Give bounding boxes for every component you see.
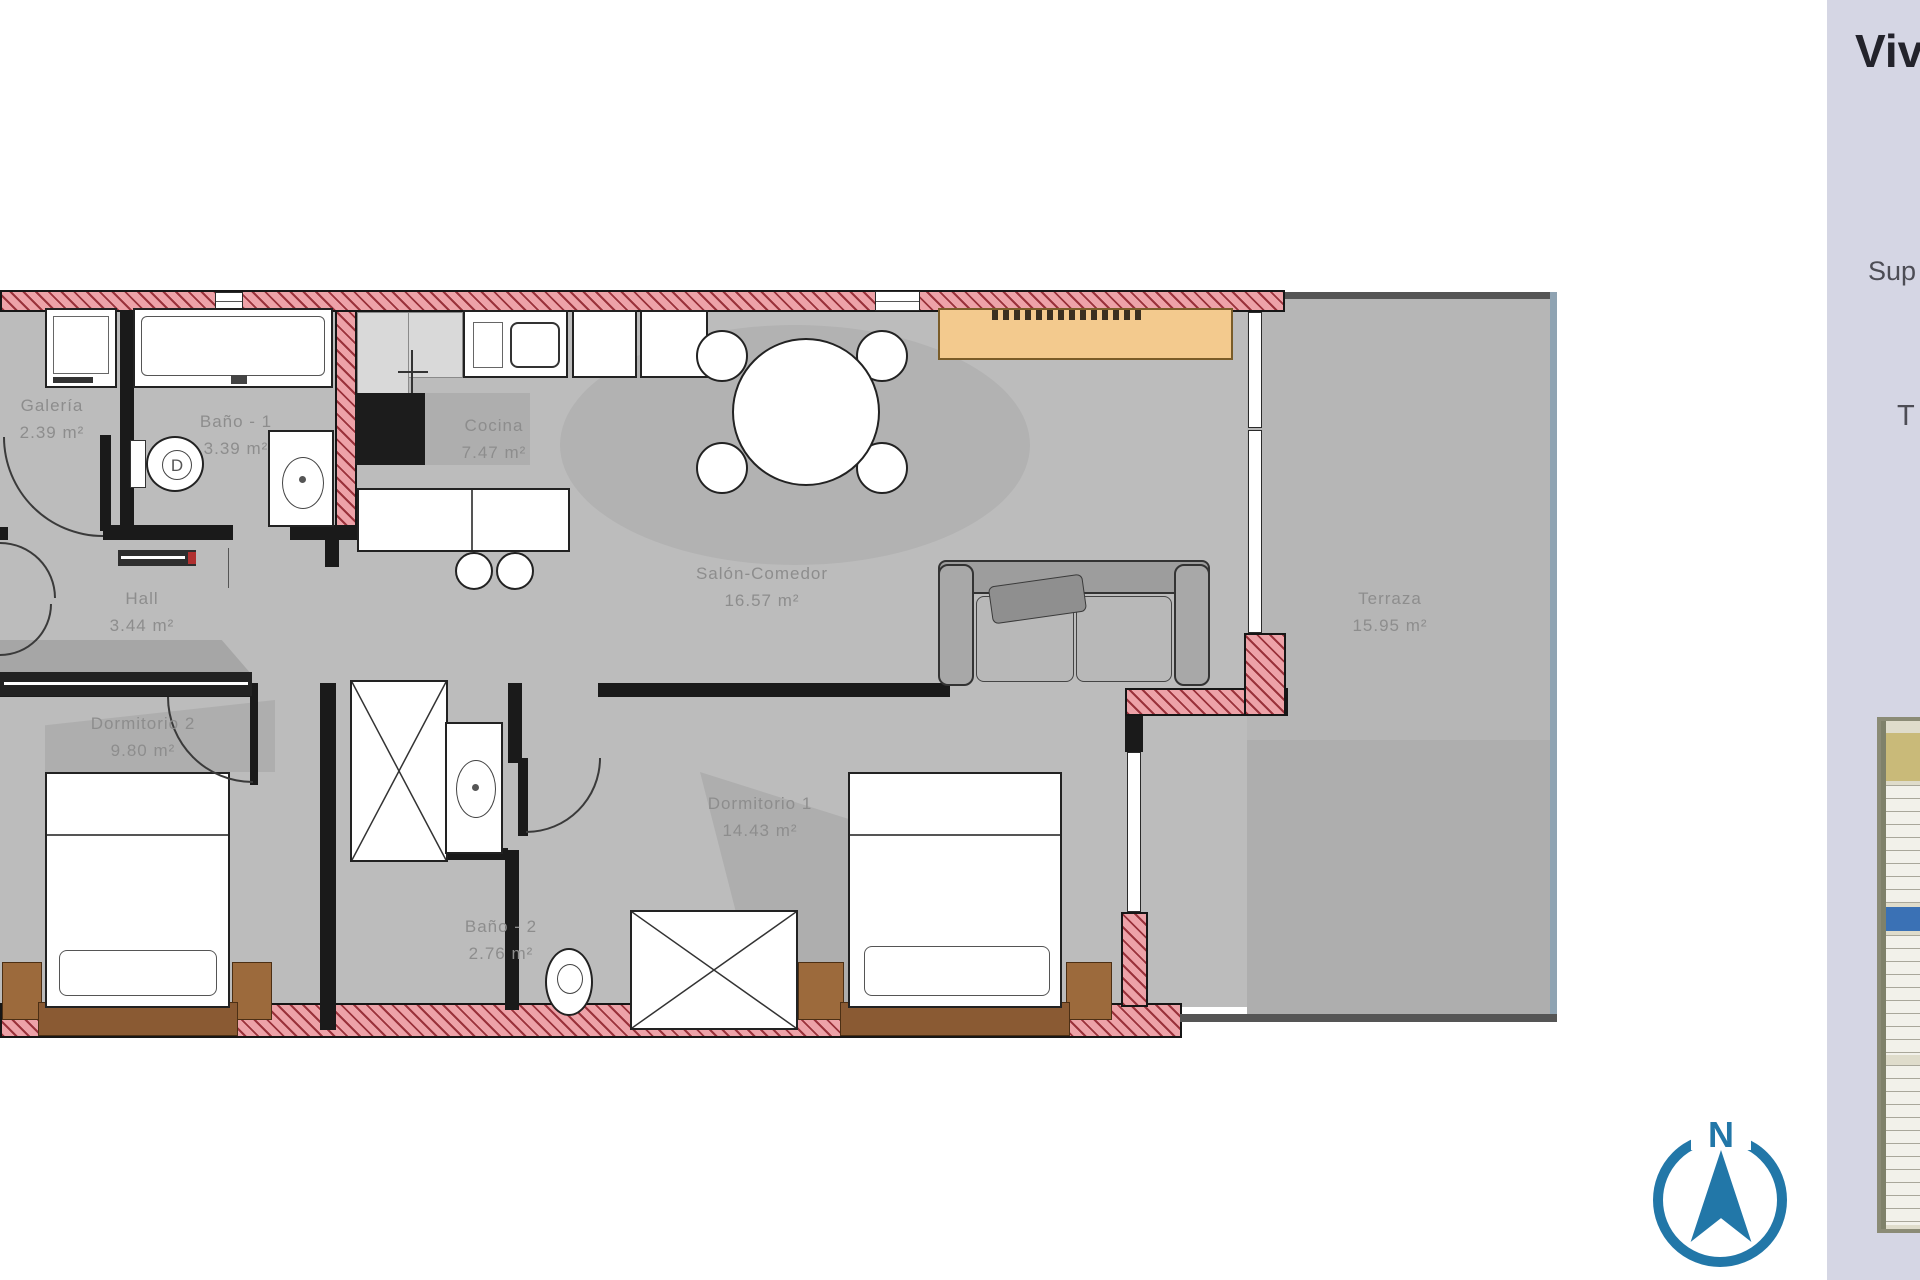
wardrobe-closet-x: [350, 680, 448, 862]
hall-radiator: [118, 550, 196, 566]
wall-hall-stub: [325, 525, 339, 567]
site-plan-tree-edge: [1881, 721, 1886, 1229]
kitchen-faucet-v: [411, 350, 413, 396]
glass-door-terraza: [1248, 430, 1262, 633]
sink-2-counter: [445, 722, 503, 854]
dining-table: [732, 338, 880, 486]
kitchen-sink-bowl: [510, 322, 560, 368]
wall-dorm1-door-jamb: [508, 683, 522, 763]
room-label-terraza: Terraza 15.95 m²: [1352, 585, 1427, 639]
terraza-floor-shade: [1247, 740, 1557, 1018]
bathtub: [133, 308, 333, 388]
wall-dorm1-right-b: [1121, 912, 1148, 1007]
wall-dorm1-top: [598, 683, 950, 697]
nightstand-d1-left: [798, 962, 844, 1020]
wall-dorm1-right-a: [1125, 716, 1143, 752]
site-plan-thumbnail: [1877, 717, 1920, 1233]
room-area: 3.44 m²: [110, 612, 175, 639]
radiator-sideboard: [938, 308, 1233, 360]
toilet-1-mark: D: [162, 450, 192, 480]
kitchen-drainer: [473, 322, 503, 368]
fridge: [355, 393, 425, 465]
wall-bano1-cocina: [335, 310, 357, 532]
toilet-2: [545, 948, 593, 1016]
sink-2-drain: [472, 784, 479, 791]
room-label-bano1: Baño - 1 3.39 m²: [200, 408, 272, 462]
hall-partition-line: [228, 548, 229, 588]
kitchen-island: [357, 488, 570, 552]
hall-radiator-valve: [188, 552, 196, 564]
nightstand-d1-right: [1066, 962, 1112, 1020]
washing-machine-panel: [53, 377, 93, 383]
wall-hall-top-b: [290, 525, 357, 540]
kitchen-sink-unit: [463, 310, 568, 378]
kitchen-counter-corner: [357, 312, 409, 396]
washing-machine-lid: [53, 316, 109, 374]
north-label: N: [1701, 1114, 1741, 1150]
dining-chair-nw: [696, 330, 748, 382]
room-label-cocina: Cocina 7.47 m²: [462, 412, 527, 466]
toilet-2-bowl: [557, 964, 583, 994]
sink-1-drain: [299, 476, 306, 483]
nightstand-d2-left: [2, 962, 42, 1020]
wardrobe2-sliding: [0, 672, 252, 696]
wall-galeria-bano1: [120, 310, 134, 532]
terraza-parapet-right: [1550, 292, 1557, 1020]
floor-plan-page: D: [0, 0, 1920, 1280]
wall-hall-top-a: [103, 525, 233, 540]
stool-1: [455, 552, 493, 590]
room-name: Dormitorio 1: [708, 790, 813, 817]
bed-dormitorio-2: [45, 772, 230, 1008]
shower-tray-x: [630, 910, 798, 1030]
site-plan-highlight-band: [1881, 907, 1920, 931]
room-label-dorm1: Dormitorio 1 14.43 m²: [708, 790, 813, 844]
room-label-galeria: Galería 2.39 m²: [20, 392, 85, 446]
sofa-armrest-left: [938, 564, 974, 686]
room-area: 7.47 m²: [462, 439, 527, 466]
bathtub-faucet: [231, 375, 247, 384]
nightstand-d2-right: [232, 962, 272, 1020]
toilet-1-tank: [130, 440, 146, 488]
wall-left-stub: [0, 527, 8, 540]
sofa-armrest-right: [1174, 564, 1210, 686]
wall-dorm2-right: [320, 683, 336, 1030]
sofa: [938, 560, 1210, 688]
room-area: 16.57 m²: [696, 587, 828, 614]
room-label-dorm2: Dormitorio 2 9.80 m²: [91, 710, 196, 764]
stool-2: [496, 552, 534, 590]
terraza-parapet-top: [1285, 292, 1557, 299]
panel-title: Viv: [1855, 24, 1920, 78]
kitchen-faucet-h: [398, 371, 428, 373]
site-plan-building-a: [1883, 785, 1920, 903]
radiator-fins: [992, 310, 1142, 320]
room-name: Cocina: [462, 412, 527, 439]
north-compass: N: [1645, 1110, 1805, 1280]
window-dorm1-terraza: [1127, 752, 1141, 912]
hall-radiator-line: [121, 556, 185, 559]
site-plan-ground: [1881, 733, 1920, 781]
kitchen-cabinet-1: [572, 310, 637, 378]
wardrobe2-track: [4, 682, 248, 685]
room-name: Dormitorio 2: [91, 710, 196, 737]
duvet-line-dorm1: [850, 834, 1060, 836]
room-area: 14.43 m²: [708, 817, 813, 844]
room-area: 3.39 m²: [200, 435, 272, 462]
window-top-salon: [875, 291, 920, 311]
room-label-bano2: Baño - 2 2.76 m²: [465, 913, 537, 967]
room-name: Baño - 2: [465, 913, 537, 940]
washing-machine: [45, 308, 117, 388]
sink-1-counter: [268, 430, 334, 527]
pillow-dorm1: [864, 946, 1050, 996]
room-area: 2.39 m²: [20, 419, 85, 446]
wardrobe2-shadow: [0, 640, 252, 675]
duvet-line-dorm2: [47, 834, 228, 836]
window-salon-terraza: [1248, 312, 1262, 428]
room-label-salon: Salón-Comedor 16.57 m²: [696, 560, 828, 614]
terraza-parapet-bottom: [1180, 1014, 1557, 1022]
site-plan-building-b: [1883, 935, 1920, 1055]
bathtub-inner: [141, 316, 325, 376]
dining-chair-sw: [696, 442, 748, 494]
side-panel: Viv Sup T: [1827, 0, 1920, 1280]
panel-superficie-text: Sup: [1868, 256, 1916, 287]
island-divider: [471, 490, 473, 550]
room-label-hall: Hall 3.44 m²: [110, 585, 175, 639]
room-name: Hall: [110, 585, 175, 612]
room-name: Baño - 1: [200, 408, 272, 435]
bed-dormitorio-1: [848, 772, 1062, 1008]
room-area: 9.80 m²: [91, 737, 196, 764]
sofa-cushion-right: [1076, 596, 1172, 682]
room-area: 2.76 m²: [465, 940, 537, 967]
toilet-1-bowl: D: [146, 436, 204, 492]
sink-1-basin: [282, 457, 324, 509]
pillow-dorm2: [59, 950, 217, 996]
room-name: Galería: [20, 392, 85, 419]
room-area: 15.95 m²: [1352, 612, 1427, 639]
wall-terraza-pillar: [1244, 633, 1286, 716]
panel-terraza-text: T: [1897, 400, 1915, 433]
room-name: Salón-Comedor: [696, 560, 828, 587]
site-plan-building-c: [1883, 1065, 1920, 1225]
room-name: Terraza: [1352, 585, 1427, 612]
